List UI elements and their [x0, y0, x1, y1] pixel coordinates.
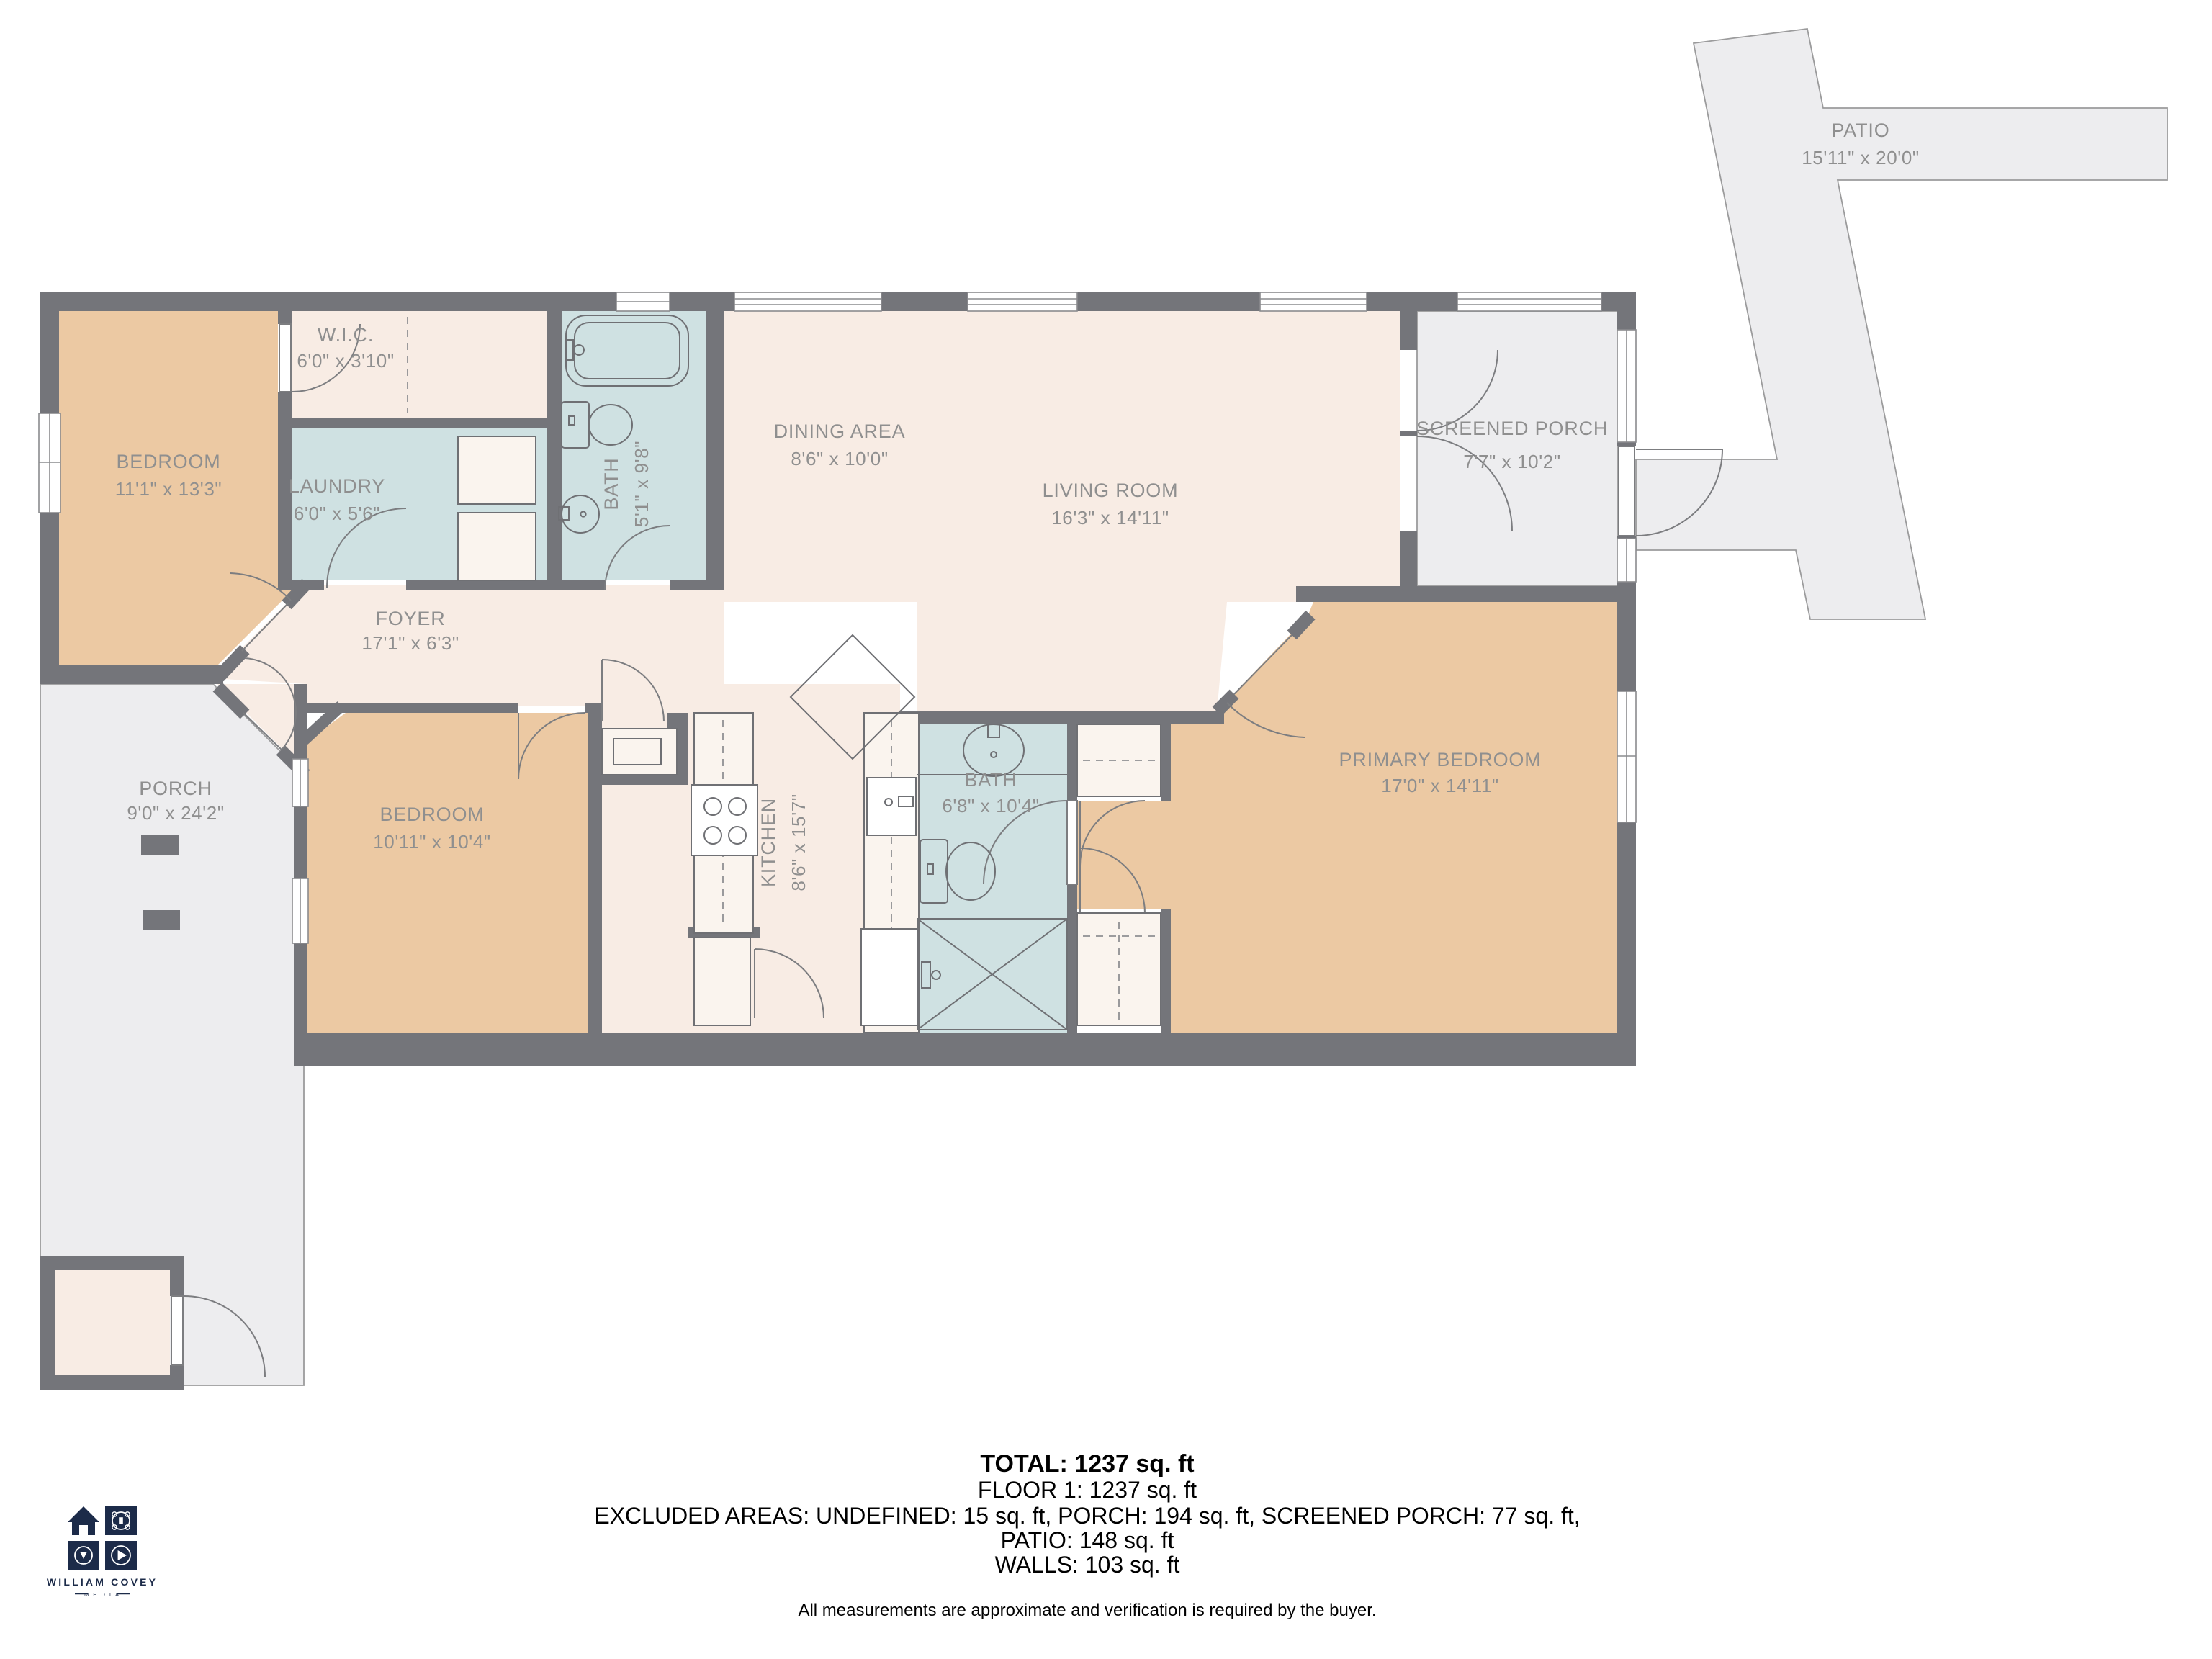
living-dims: 16'3" x 14'11"	[1051, 507, 1169, 529]
window-top-living-1	[968, 292, 1077, 311]
window-top-bath1	[616, 292, 670, 311]
storage-floor	[55, 1270, 170, 1375]
summary-patio: PATIO: 148 sq. ft	[1001, 1527, 1174, 1553]
living-label: LIVING ROOM	[1043, 480, 1179, 501]
bath1-label: BATH	[601, 457, 622, 510]
summary-excluded: EXCLUDED AREAS: UNDEFINED: 15 sq. ft, PO…	[594, 1503, 1580, 1529]
primary-hall-floor	[1077, 801, 1171, 909]
screened-porch-label: SCREENED PORCH	[1416, 418, 1608, 439]
window-screened-porch-right-2	[1617, 539, 1636, 582]
bath2-dims: 6'8" x 10'4"	[942, 795, 1039, 817]
bedroom2-floor	[307, 713, 588, 1033]
dryer-icon	[458, 513, 536, 580]
summary-disclaimer: All measurements are approximate and ver…	[798, 1601, 1376, 1620]
window-primary-right	[1617, 691, 1636, 822]
drone-icon	[105, 1506, 137, 1535]
window-bedroom2-porch-2	[292, 878, 308, 943]
wic-label: W.I.C.	[318, 324, 374, 346]
closet1	[1077, 724, 1161, 796]
floor-plan-canvas: PATIO 15'11" x 20'0" PORCH 9'0" x 24'2"	[0, 0, 2212, 1659]
laundry-label: LAUNDRY	[289, 475, 385, 497]
window-top-dining	[734, 292, 881, 311]
stove-icon	[691, 785, 757, 855]
bedroom1-dims: 11'1" x 13'3"	[115, 478, 222, 500]
window-screened-porch-right-1	[1617, 330, 1636, 442]
primary-bedroom-floor	[1171, 602, 1617, 1033]
summary-block: TOTAL: 1237 sq. ft FLOOR 1: 1237 sq. ft …	[594, 1450, 1580, 1620]
patio-label: PATIO	[1831, 120, 1889, 141]
porch-area: PORCH 9'0" x 24'2"	[40, 684, 304, 1390]
screened-porch-patio-door	[1619, 446, 1635, 536]
foyer-dims: 17'1" x 6'3"	[361, 632, 459, 654]
coat-closet	[602, 729, 677, 775]
bedroom1-label: BEDROOM	[116, 451, 220, 472]
patio-dims: 15'11" x 20'0"	[1802, 147, 1920, 168]
brand-name: WILLIAM COVEY	[47, 1576, 158, 1588]
primary-bedroom-dims: 17'0" x 14'11"	[1381, 775, 1499, 796]
kitchen-label: KITCHEN	[757, 798, 779, 887]
window-bedroom2-porch-1	[292, 759, 308, 806]
screened-porch-dims: 7'7" x 10'2"	[1463, 451, 1560, 472]
play-icon	[105, 1541, 137, 1570]
window-top-living-2	[1260, 292, 1367, 311]
porch-dims: 9'0" x 24'2"	[127, 802, 224, 824]
brand-logo: WILLIAM COVEY MEDIA	[47, 1506, 158, 1598]
fridge-icon	[861, 929, 919, 1025]
storage-door-leaf	[171, 1296, 183, 1365]
closet2	[1077, 913, 1161, 1025]
dining-dims: 8'6" x 10'0"	[791, 448, 888, 469]
bath2-label: BATH	[964, 769, 1017, 791]
summary-walls: WALLS: 103 sq. ft	[995, 1552, 1180, 1578]
laundry-dims: 6'0" x 5'6"	[294, 503, 380, 524]
patio-floor	[1636, 29, 2167, 619]
window-bedroom1-left	[39, 413, 60, 513]
window-top-screened-porch	[1457, 292, 1601, 311]
hall-floor	[917, 602, 1227, 711]
foyer-label: FOYER	[375, 608, 445, 629]
pantry	[694, 938, 750, 1025]
house-icon	[68, 1506, 99, 1535]
patio-area: PATIO 15'11" x 20'0"	[1636, 29, 2167, 619]
dining-label: DINING AREA	[774, 421, 906, 442]
bath1-dims: 5'1" x 9'8"	[631, 441, 652, 527]
porch-post-1	[141, 835, 179, 855]
screened-porch-floor	[1417, 311, 1617, 586]
brand-sub: MEDIA	[84, 1591, 123, 1598]
primary-bedroom-label: PRIMARY BEDROOM	[1339, 749, 1541, 770]
kitchen-sink-icon	[867, 778, 916, 835]
wic-dims: 6'0" x 3'10"	[297, 350, 394, 372]
porch-post-2	[143, 910, 180, 930]
bedroom2-label: BEDROOM	[379, 804, 484, 825]
washer-icon	[458, 436, 536, 504]
summary-floor: FLOOR 1: 1237 sq. ft	[978, 1477, 1197, 1503]
shutter-icon	[68, 1541, 99, 1570]
bedroom2-dims: 10'11" x 10'4"	[373, 831, 491, 853]
kitchen-dims: 8'6" x 15'7"	[788, 793, 809, 891]
summary-total: TOTAL: 1237 sq. ft	[980, 1450, 1194, 1478]
porch-label: PORCH	[139, 778, 212, 799]
